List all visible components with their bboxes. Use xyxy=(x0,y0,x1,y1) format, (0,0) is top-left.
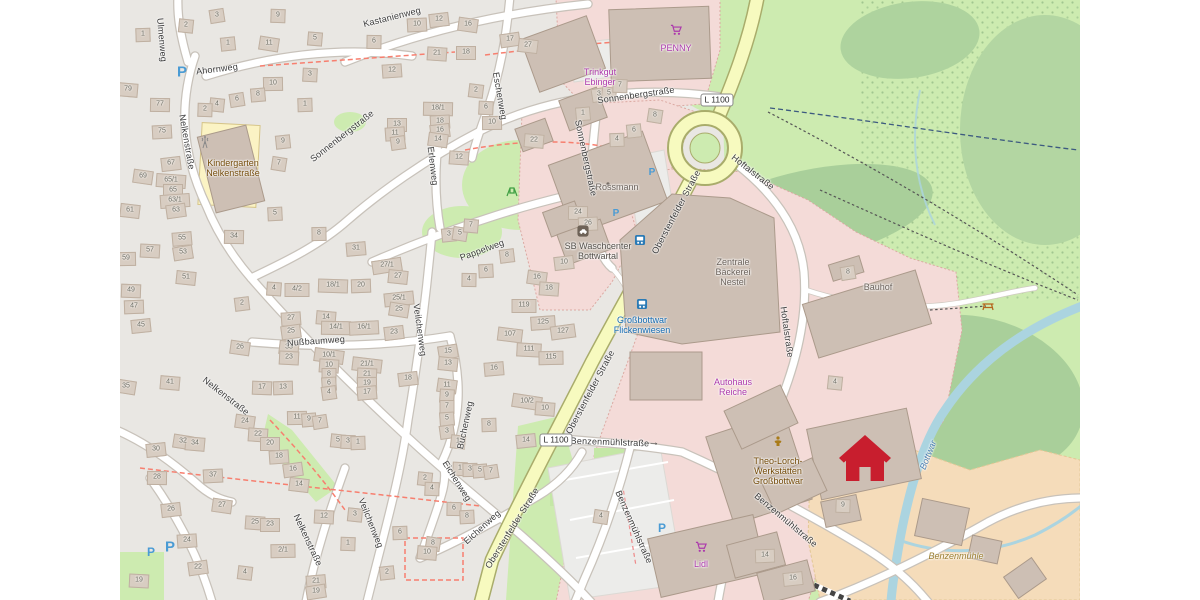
house-number: 69 xyxy=(139,173,147,180)
house-number: 1 xyxy=(141,31,145,38)
house-number: 4 xyxy=(615,136,619,143)
poi-label: SB WaschcenterBottwartal xyxy=(565,241,632,261)
parking-icon: P xyxy=(613,209,620,219)
house-number: 1 xyxy=(356,439,360,446)
house-number: 21 xyxy=(363,371,371,378)
house-number: 14/1 xyxy=(329,324,343,331)
poi-label: KindergartenNelkenstraße xyxy=(206,158,260,178)
poi-label-line: Theo-Lorch- xyxy=(753,456,803,466)
parking-icon: P xyxy=(177,65,187,80)
poi-label-line: Flickenwiesen xyxy=(614,325,671,335)
house-number: 26 xyxy=(236,344,244,351)
house-number: 16 xyxy=(289,466,297,473)
house-number: 6 xyxy=(452,505,456,512)
house-number: 7 xyxy=(318,418,322,425)
street-label: Erlenweg xyxy=(426,146,441,186)
house-number: 27/1 xyxy=(380,262,394,269)
poi-label-line: Bauhof xyxy=(864,282,893,292)
social-icon xyxy=(772,435,784,447)
poi-label: Lidl xyxy=(694,559,708,569)
house-number: 14 xyxy=(522,437,530,444)
house-number: 7 xyxy=(469,222,473,229)
house-number: 22 xyxy=(254,431,262,438)
house-number: 7 xyxy=(489,468,493,475)
house-number: 20 xyxy=(357,282,365,289)
house-number: 8 xyxy=(431,540,435,547)
house-number: 11 xyxy=(265,40,272,47)
house-number: 57 xyxy=(146,247,154,254)
house-number: 125 xyxy=(537,319,549,326)
house-number: 24 xyxy=(241,418,249,425)
mast-icon xyxy=(199,135,211,149)
house-number: 11 xyxy=(293,414,300,421)
house-number: 26 xyxy=(167,506,175,513)
house-number: 8 xyxy=(505,252,509,259)
house-number: 8 xyxy=(256,91,260,98)
house-number: 14 xyxy=(761,552,769,559)
house-number: 9 xyxy=(396,139,400,146)
house-number: 2 xyxy=(385,569,389,576)
poi-label-line: Werkstätten xyxy=(753,466,803,476)
house-number: 30 xyxy=(152,446,160,453)
street-label: Ahornweg xyxy=(195,61,238,76)
house-number: 12 xyxy=(388,67,396,74)
house-number: 10 xyxy=(541,405,549,412)
poi-label-line: Zentrale xyxy=(715,257,750,267)
house-number: 11 xyxy=(391,130,398,137)
house-number: 9 xyxy=(307,416,311,423)
street-label: Benzenmühlstraße xyxy=(753,491,820,549)
house-number: 16 xyxy=(789,575,797,582)
house-number: 25 xyxy=(395,306,403,313)
house-number: 23 xyxy=(266,521,274,528)
house-number: 20 xyxy=(266,440,274,447)
house-number: 3 xyxy=(353,511,357,518)
house-number: 10 xyxy=(488,119,496,126)
poi-label: Benzenmühle xyxy=(928,551,983,561)
house-number: 8 xyxy=(653,112,657,119)
house-number: 77 xyxy=(156,101,164,108)
street-label: Ulmenweg xyxy=(155,18,169,63)
house-number: 4 xyxy=(215,101,219,108)
house-number: 9 xyxy=(841,502,845,509)
street-label: Benzenmühlstraße xyxy=(613,489,654,565)
house-number: 1 xyxy=(581,110,585,117)
parking-icon: P xyxy=(658,522,666,534)
house-number: 4/2 xyxy=(292,286,302,293)
carwash-icon xyxy=(577,225,589,237)
street-label: Oberstenfelder Straße xyxy=(483,486,541,570)
street-label: Buchenweg xyxy=(455,400,475,450)
poi-label-line: Nestel xyxy=(715,277,750,287)
house-number: 3 xyxy=(308,71,312,78)
house-number: 2/1 xyxy=(278,547,288,554)
street-label: Hoftalstraße xyxy=(778,306,795,358)
house-number: 27 xyxy=(524,42,532,49)
street-label: Benzenmühlstraße xyxy=(570,436,649,449)
house-number: 1 xyxy=(226,40,230,47)
house-number: 79 xyxy=(124,86,132,93)
house-number: 3 xyxy=(215,12,219,19)
arrow-icon: → xyxy=(649,438,660,449)
street-label: Oberstenfelder Straße xyxy=(650,168,703,255)
house-number: 14 xyxy=(322,314,330,321)
house-number: 37 xyxy=(209,472,217,479)
poi-label-line: Kindergarten xyxy=(206,158,260,168)
house-number: 4 xyxy=(327,389,331,396)
house-number: 8 xyxy=(317,230,321,237)
house-number: 19 xyxy=(363,380,371,387)
parking-icon: P xyxy=(165,540,175,555)
house-number: 12 xyxy=(435,16,443,23)
house-number: 17 xyxy=(363,389,371,396)
poi-label: TrinkgutEbinger xyxy=(584,67,616,87)
house-number: 7 xyxy=(445,403,449,410)
house-number: 27 xyxy=(287,315,295,322)
house-number: 19 xyxy=(135,577,143,584)
house-number: 34 xyxy=(230,233,238,240)
house-number: 6 xyxy=(372,38,376,45)
poi-label-line: Trinkgut xyxy=(584,67,616,77)
house-number: 65/1 xyxy=(164,177,178,184)
house-number: 16 xyxy=(464,21,472,28)
house-number: 18 xyxy=(545,285,553,292)
house-number: 6 xyxy=(484,267,488,274)
house-number: 3 xyxy=(468,466,472,473)
house-number: 6 xyxy=(632,127,636,134)
house-number: 13 xyxy=(393,121,401,128)
house-number: 55 xyxy=(178,235,186,242)
house-number: 51 xyxy=(182,274,190,281)
house-number: 63 xyxy=(172,207,180,214)
street-label: Veilchenweg xyxy=(411,303,428,357)
house-number: 13 xyxy=(444,360,452,367)
house-number: 1 xyxy=(346,540,350,547)
house-number: 119 xyxy=(518,302,529,309)
house-number: 4 xyxy=(272,285,276,292)
house-number: 127 xyxy=(557,328,569,335)
house-number: 12 xyxy=(320,513,328,520)
poi-label: Theo-Lorch-WerkstättenGroßbottwar xyxy=(753,456,803,486)
poi-label: Bottwar xyxy=(918,439,939,471)
house-number: 10 xyxy=(325,362,333,369)
house-number: 3 xyxy=(447,231,451,238)
house-number: 16 xyxy=(490,365,498,372)
house-number: 24 xyxy=(183,537,191,544)
house-number: 17 xyxy=(258,384,266,391)
house-number: 7 xyxy=(277,160,281,167)
house-number: 8 xyxy=(487,421,491,428)
house-number: 15 xyxy=(444,348,452,355)
house-number: 16 xyxy=(436,127,444,134)
parking-icon: P xyxy=(649,168,656,178)
house-number: 75 xyxy=(158,128,166,135)
house-number: 2 xyxy=(184,22,188,29)
house-number: 34 xyxy=(191,440,199,447)
house-number: 16 xyxy=(533,274,541,281)
house-number: 27 xyxy=(218,502,226,509)
poi-label-line: Bottwartal xyxy=(565,251,632,261)
house-number: 19 xyxy=(312,588,320,595)
house-number: 5 xyxy=(313,35,317,42)
bus-icon xyxy=(635,235,646,246)
house-number: 22 xyxy=(530,137,538,144)
house-number: 4 xyxy=(243,569,247,576)
house-number: 8 xyxy=(327,371,331,378)
house-number: 2 xyxy=(203,106,207,113)
house-number: 4 xyxy=(467,276,471,283)
house-number: 18 xyxy=(462,49,470,56)
house-number: 12 xyxy=(455,154,463,161)
house-number: 18 xyxy=(404,375,412,382)
house-number: 2 xyxy=(474,87,478,94)
house-number: 63/1 xyxy=(168,197,182,204)
house-number: 111 xyxy=(524,346,535,353)
house-number: 24 xyxy=(574,209,582,216)
house-number: 41 xyxy=(166,379,174,386)
house-number: 22 xyxy=(194,564,202,571)
house-number: 32 xyxy=(179,438,187,445)
house-number: 3 xyxy=(346,438,350,445)
poi-label-line: Benzenmühle xyxy=(928,551,983,561)
poi-label-line: Ebinger xyxy=(584,77,616,87)
house-number: 10 xyxy=(269,80,277,87)
street-label: Eschenweg xyxy=(491,71,509,120)
house-number: 25/1 xyxy=(392,295,406,302)
house-number: 4 xyxy=(833,379,837,386)
poi-label: AutohausReiche xyxy=(714,377,752,397)
cart-icon xyxy=(695,542,707,553)
house-number: 6 xyxy=(327,380,331,387)
house-number: 5 xyxy=(445,415,449,422)
picnic-icon xyxy=(982,301,995,311)
house-number: 3 xyxy=(445,428,449,435)
house-number: 18 xyxy=(436,118,444,125)
poi-label-line: PENNY xyxy=(660,43,691,53)
house-number: 10/2 xyxy=(520,398,534,405)
street-label: Sonnenbergstraße xyxy=(308,108,375,164)
house-number: 25 xyxy=(251,519,259,526)
playground-icon xyxy=(506,187,518,197)
house-number: 2 xyxy=(423,475,427,482)
house-number: 107 xyxy=(504,331,516,338)
house-number: 21 xyxy=(312,578,320,585)
house-number: 23 xyxy=(390,329,398,336)
street-label: Nelkenstraße xyxy=(201,375,251,417)
cart-icon xyxy=(670,25,682,36)
house-number: 11 xyxy=(443,382,450,389)
house-number: 18 xyxy=(275,453,283,460)
house-number: 6 xyxy=(235,96,239,103)
house-number: 5 xyxy=(478,467,482,474)
house-number: 17 xyxy=(506,36,514,43)
bus-icon xyxy=(637,299,648,310)
poi-label: ZentraleBäckereiNestel xyxy=(715,257,750,287)
house-number: 7 xyxy=(618,82,622,89)
house-number: 4 xyxy=(599,513,603,520)
poi-label-line: Autohaus xyxy=(714,377,752,387)
house-number: 6 xyxy=(484,104,488,111)
poi-label: GroßbottwarFlickenwiesen xyxy=(614,315,671,335)
poi-label-line: Großbottwar xyxy=(614,315,671,325)
house-number: 25 xyxy=(287,328,295,335)
house-number: 18/1 xyxy=(431,105,445,112)
street-label: Hoftalstraße xyxy=(730,152,777,192)
house-number: 21/1 xyxy=(360,361,374,368)
house-number: 9 xyxy=(445,392,449,399)
house-number: 9 xyxy=(276,12,280,19)
house-number: 59 xyxy=(122,255,130,262)
road-ref-badge: L 1100 xyxy=(700,94,733,107)
house-number: 115 xyxy=(545,354,556,361)
poi-label-line: Bäckerei xyxy=(715,267,750,277)
house-number: 21 xyxy=(433,50,441,57)
house-number: 10 xyxy=(413,21,421,28)
house-number: 14 xyxy=(295,481,303,488)
house-number: 23 xyxy=(285,354,293,361)
house-number: 45 xyxy=(137,322,145,329)
house-number: 35 xyxy=(122,383,130,390)
house-number: 1 xyxy=(458,465,462,472)
house-number: 2 xyxy=(240,300,244,307)
house-number: 9 xyxy=(281,138,285,145)
poi-label-line: Nelkenstraße xyxy=(206,168,260,178)
parking-icon: P xyxy=(147,546,155,558)
house-number: 1 xyxy=(303,101,307,108)
poi-label-line: Großbottwar xyxy=(753,476,803,486)
house-number: 10/1 xyxy=(322,352,336,359)
screenshot: 3291111561012162118121727310864219779777… xyxy=(0,0,1200,600)
road-ref-badge: L 1100 xyxy=(539,434,572,447)
house-number: 28 xyxy=(153,474,161,481)
street-label: Veilchenweg xyxy=(356,497,385,550)
house-number: 6 xyxy=(398,529,402,536)
street-label: Oberstenfelder Straße xyxy=(564,348,617,435)
house-number: 5 xyxy=(273,210,277,217)
poi-label-line: Lidl xyxy=(694,559,708,569)
house-number: 31 xyxy=(352,245,360,252)
house-number: 53 xyxy=(179,249,187,256)
house-number: 65 xyxy=(169,187,177,194)
house-number: 10 xyxy=(423,549,431,556)
poi-label: PENNY xyxy=(660,43,691,53)
house-number: 47 xyxy=(130,303,138,310)
label-overlay: 3291111561012162118121727310864219779777… xyxy=(120,0,1080,600)
house-number: 18/1 xyxy=(326,282,340,289)
house-number: 4 xyxy=(430,485,434,492)
house-number: 5 xyxy=(458,230,462,237)
house-number: 8 xyxy=(465,513,469,520)
poi-label-line: SB Waschcenter xyxy=(565,241,632,251)
house-number: 27 xyxy=(394,273,402,280)
poi-label-line: Bottwar xyxy=(918,439,939,471)
house-number: 8 xyxy=(846,269,850,276)
house-number: 61 xyxy=(126,207,134,214)
house-number: 16/1 xyxy=(357,324,371,331)
house-number: 49 xyxy=(127,287,135,294)
poi-label: Rossmann xyxy=(595,182,638,192)
poi-label-line: Reiche xyxy=(714,387,752,397)
map-viewport[interactable]: 3291111561012162118121727310864219779777… xyxy=(120,0,1080,600)
poi-label-line: Rossmann xyxy=(595,182,638,192)
house-number: 14 xyxy=(434,136,442,143)
house-number: 67 xyxy=(167,160,175,167)
poi-label: Bauhof xyxy=(864,282,893,292)
home-icon[interactable] xyxy=(839,435,891,482)
house-number: 13 xyxy=(279,384,287,391)
house-number: 5 xyxy=(336,437,340,444)
